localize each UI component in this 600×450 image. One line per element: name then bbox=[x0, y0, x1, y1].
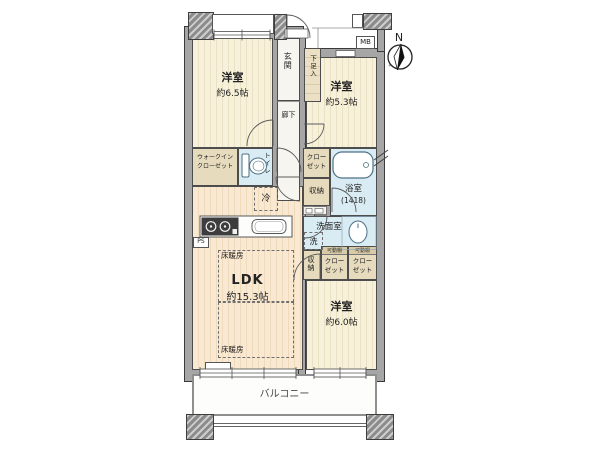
pillar-top-right bbox=[363, 13, 392, 30]
bedroom-5.3-name: 洋室 bbox=[306, 81, 377, 94]
pipe-space-label: PS bbox=[193, 239, 209, 246]
hallway-label: 廊下 bbox=[277, 111, 300, 119]
closet-1-shelf-strip: 可動棚 bbox=[322, 247, 347, 255]
bath-name: 浴室 bbox=[330, 185, 377, 195]
ldk-name: LDK bbox=[192, 274, 303, 289]
shoe-cabinet-label: 下足入 bbox=[308, 55, 315, 78]
balcony-pillar-left bbox=[186, 414, 214, 440]
compass-north-icon: N bbox=[388, 31, 412, 70]
room-bath bbox=[330, 148, 377, 216]
bedroom-6.5-name: 洋室 bbox=[192, 72, 273, 85]
balcony-pillar-right bbox=[366, 414, 394, 440]
closet-2-line2: ゼット bbox=[348, 267, 377, 274]
meter-box-label: MB bbox=[356, 38, 375, 46]
balcony-label: バルコニー bbox=[192, 389, 377, 401]
top-right-notch bbox=[352, 14, 363, 28]
small-storage-label: 収納 bbox=[307, 256, 315, 272]
bottom-utility-box bbox=[205, 362, 231, 371]
fridge-label: 冷 bbox=[254, 194, 278, 204]
bath-size: (1418) bbox=[330, 197, 377, 206]
movable-shelf-label: 可動棚 bbox=[327, 248, 342, 254]
bedroom-6.5-size: 約6.5帖 bbox=[192, 89, 273, 99]
entry-alcove bbox=[212, 14, 274, 34]
wic-label-line1: ウォークイン bbox=[192, 155, 238, 162]
floor-heating-label-top: 床暖房 bbox=[221, 252, 244, 261]
bedroom-6.0-name: 洋室 bbox=[306, 301, 377, 314]
floor-plan: 可動棚 可動棚 洋室 約6.5帖 洋室 約5.3帖 洋室 約6.0帖 LDK 約… bbox=[0, 0, 600, 450]
hall-storage-label: 収納 bbox=[303, 187, 330, 196]
bedroom-5.3-size: 約5.3帖 bbox=[306, 98, 377, 108]
washer-label: 洗 bbox=[304, 237, 323, 246]
hall-closet-line2: ゼット bbox=[303, 163, 330, 170]
toilet-label: トイレ bbox=[262, 152, 269, 175]
entrance-label: 玄関 bbox=[283, 52, 292, 70]
pillar-top-left bbox=[188, 12, 214, 40]
closet-2-line1: クロー bbox=[348, 258, 377, 265]
closet-1-line1: クロー bbox=[321, 258, 348, 265]
closet-2-shelf-strip: 可動棚 bbox=[349, 247, 376, 255]
floor-heating-label-bottom: 床暖房 bbox=[221, 346, 244, 355]
bedroom-6.0-size: 約6.0帖 bbox=[306, 318, 377, 328]
wic-label-line2: クローゼット bbox=[192, 164, 238, 171]
balcony-railing bbox=[214, 423, 366, 427]
pillar-top-middle bbox=[274, 14, 287, 40]
hall-closet-line1: クロー bbox=[303, 154, 330, 161]
ldk-size: 約15.3帖 bbox=[192, 292, 303, 304]
movable-shelf-label: 可動棚 bbox=[355, 248, 370, 254]
compass-north-label: N bbox=[395, 31, 403, 44]
washroom-label: 洗面室 bbox=[303, 223, 355, 233]
closet-1-line2: ゼット bbox=[321, 267, 348, 274]
